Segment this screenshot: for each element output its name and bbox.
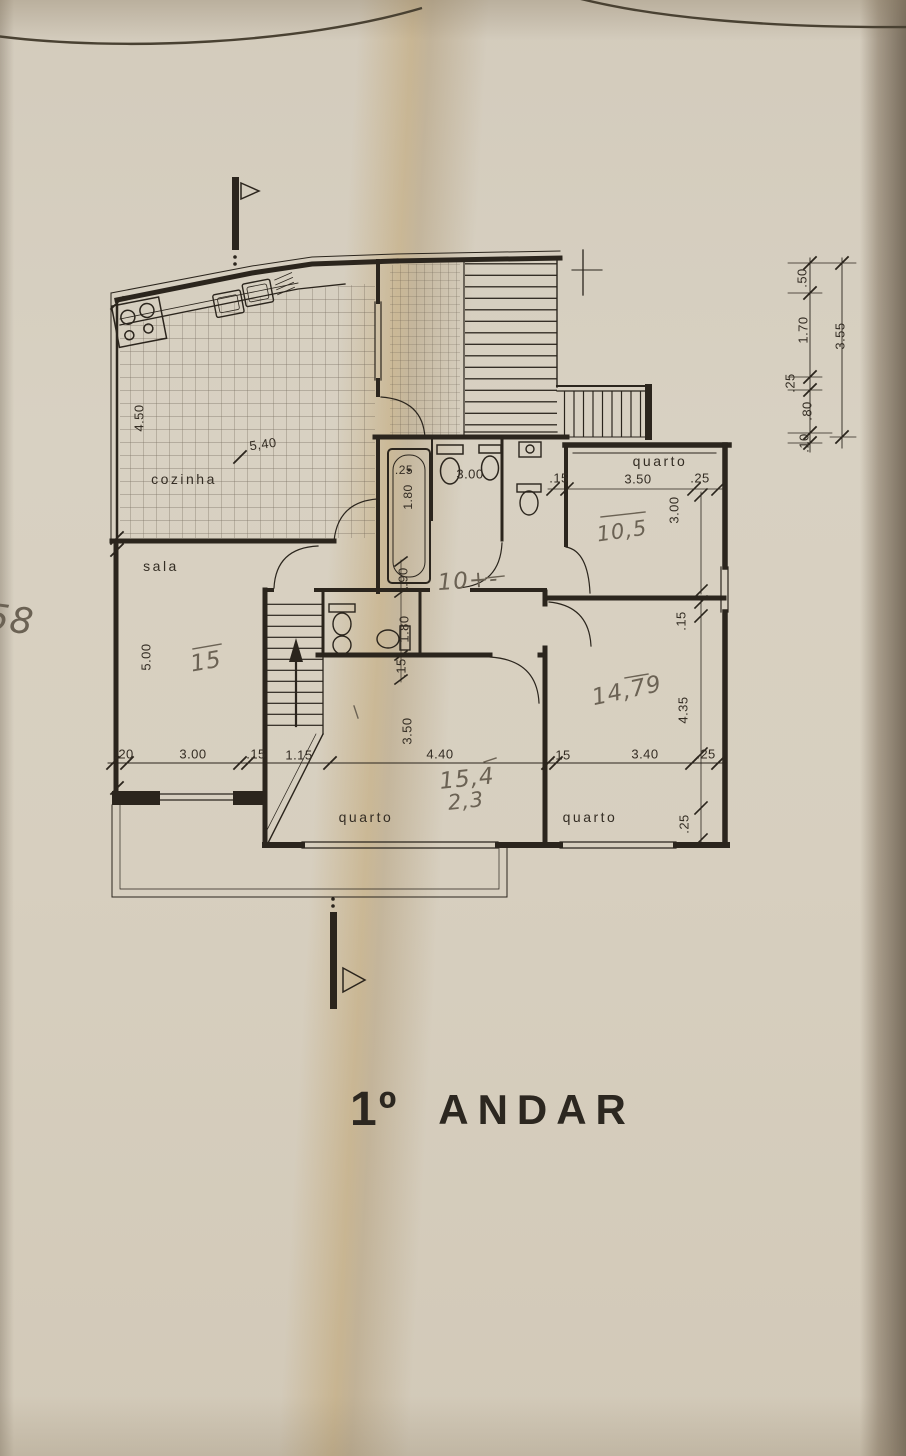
dim-bedroomright-435: 4.35 [676, 696, 691, 723]
vestibule-tile-grid [390, 262, 460, 435]
dim-side-355: 3.55 [833, 322, 848, 349]
dim-bedroomright-25: .25 [677, 814, 692, 834]
handwritten-bedroomleft-area2: 2,3 [447, 787, 486, 815]
dim-bedroomright-15: .15 [674, 611, 689, 631]
dimension-extension-top-right [572, 250, 602, 295]
handwritten-living-area: 15 [188, 646, 223, 677]
handwritten-hall-area: 10+- [437, 566, 500, 596]
room-label-kitchen: cozinha [151, 471, 217, 487]
dim-side-170: 1.70 [796, 316, 811, 343]
room-label-bedroom-left: quarto [339, 809, 394, 825]
title-floor-word: ANDAR [438, 1086, 635, 1134]
dim-bath-300: 3.00 [456, 467, 483, 482]
handwritten-page-number: 58 [0, 596, 37, 643]
dim-chain-15a: .15 [246, 747, 266, 762]
floor-plan-drawing [0, 0, 906, 1456]
dim-bedroomtop-25: .25 [690, 471, 710, 486]
dim-hall-90: .90 [396, 567, 411, 587]
room-label-bedroom-top: quarto [633, 453, 688, 469]
dim-chain-440: 4.40 [426, 747, 453, 762]
dim-wc-180: 1.80 [397, 615, 412, 642]
dim-chain-300: 3.00 [179, 747, 206, 762]
dim-bedroomleft-350: 3.50 [400, 717, 415, 744]
dim-side-25: .25 [783, 373, 798, 393]
interior-stairs [265, 590, 323, 845]
dim-tub-180: 1.80 [401, 484, 415, 509]
dim-side-50: .50 [795, 268, 810, 288]
section-mark-top [232, 177, 259, 266]
dim-tub-25: .25 [395, 463, 413, 477]
dim-chain-15b: .15 [551, 748, 571, 763]
page-top-edge [0, 0, 906, 44]
dim-chain-25: .25 [696, 747, 716, 762]
dim-bedroomtop-15: .15 [549, 471, 569, 486]
title-floor-number: 1º [350, 1086, 398, 1134]
exterior-stairs-treads [465, 260, 557, 432]
dim-living-height: 5.00 [139, 643, 154, 670]
wc-toilet-icon [329, 604, 355, 654]
dimension-chain-bedroom-right [695, 596, 707, 846]
railing [557, 384, 652, 440]
dim-chain-20: .20 [114, 747, 134, 762]
closet-fixture-icons [517, 442, 541, 515]
dim-chain-115: 1.15 [285, 748, 312, 763]
bedroom-top-walls [565, 445, 729, 842]
floor-plan-photo: cozinha sala quarto quarto quarto 4.50 5… [0, 0, 906, 1456]
dim-kitchen-height: 4.50 [132, 404, 147, 431]
dim-chain-340: 3.40 [631, 747, 658, 762]
bottom-walls [265, 842, 727, 848]
dim-wall-15: .15 [394, 658, 409, 678]
dim-bedroomtop-350: 3.50 [624, 472, 651, 487]
dim-side-10: .10 [797, 433, 812, 453]
dim-bedroomtop-300: 3.00 [667, 496, 682, 523]
section-mark-bottom [330, 897, 365, 1009]
room-label-bedroom-right: quarto [563, 809, 618, 825]
dim-side-80: .80 [800, 401, 815, 421]
kitchen-tile-grid [120, 283, 375, 538]
room-label-living: sala [143, 558, 179, 574]
balcony-outline [112, 805, 507, 897]
drawing-title: 1º ANDAR [350, 1086, 635, 1134]
